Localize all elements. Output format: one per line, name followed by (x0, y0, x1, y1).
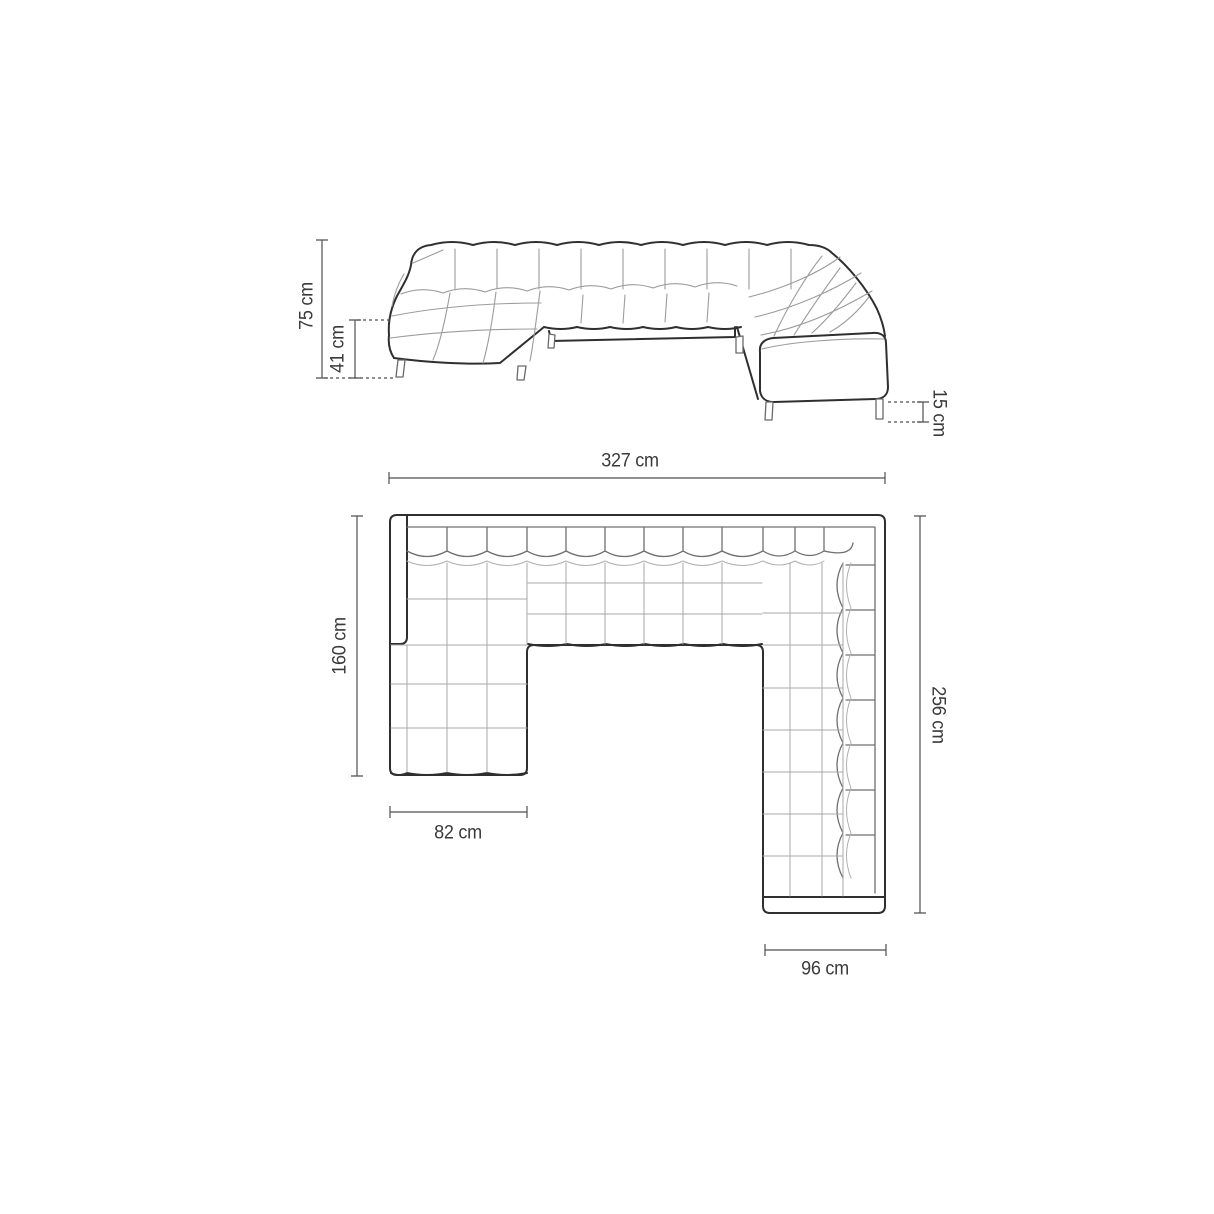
dimension-line-arm-width (765, 944, 886, 956)
seat-front-edge (544, 327, 741, 329)
plan-outline (390, 515, 885, 913)
perspective-view (316, 240, 929, 422)
dim-label-leg-height: 15 cm (930, 389, 949, 437)
technical-drawing-canvas: 75 cm 41 cm 15 cm 327 cm 160 cm 256 cm 8… (0, 0, 1214, 1214)
dimension-line-left-depth (351, 516, 363, 776)
backrest-seat-scallop (401, 283, 737, 294)
dim-label-seat-height: 41 cm (329, 325, 348, 373)
dim-label-total-width: 327 cm (601, 452, 658, 471)
plan-back-cushions-inner-scallop (407, 561, 824, 566)
dim-label-arm-width: 96 cm (801, 960, 849, 979)
dimension-line-leg-height (917, 402, 929, 422)
left-arm-seams (392, 250, 443, 306)
dim-label-right-depth: 256 cm (929, 686, 948, 743)
sofa-drawing-svg (0, 0, 1214, 1214)
dimension-line-total-width (389, 472, 885, 484)
plan-back-cushions-top (407, 527, 874, 557)
dim-label-total-height: 75 cm (298, 282, 317, 330)
chaise-front-outline (394, 327, 544, 364)
dimension-line-seat-height (349, 320, 361, 378)
right-arm-panel (760, 333, 888, 402)
chaise-tuft-seams (390, 291, 541, 363)
dim-label-left-depth: 160 cm (331, 617, 350, 674)
base-platform (549, 327, 735, 341)
dimension-line-right-depth (914, 516, 926, 913)
dimension-line-total-height (316, 240, 328, 378)
plan-view (351, 472, 926, 956)
plan-tufting-grid (391, 563, 843, 896)
dim-label-chaise-width: 82 cm (434, 824, 482, 843)
sofa-back-outline (389, 242, 885, 358)
dimension-line-chaise-width (390, 806, 527, 818)
sofa-legs (396, 334, 883, 420)
back-tuft-seams (455, 249, 791, 289)
plan-left-arm (391, 516, 407, 644)
seat-tuft-seams (581, 293, 709, 323)
